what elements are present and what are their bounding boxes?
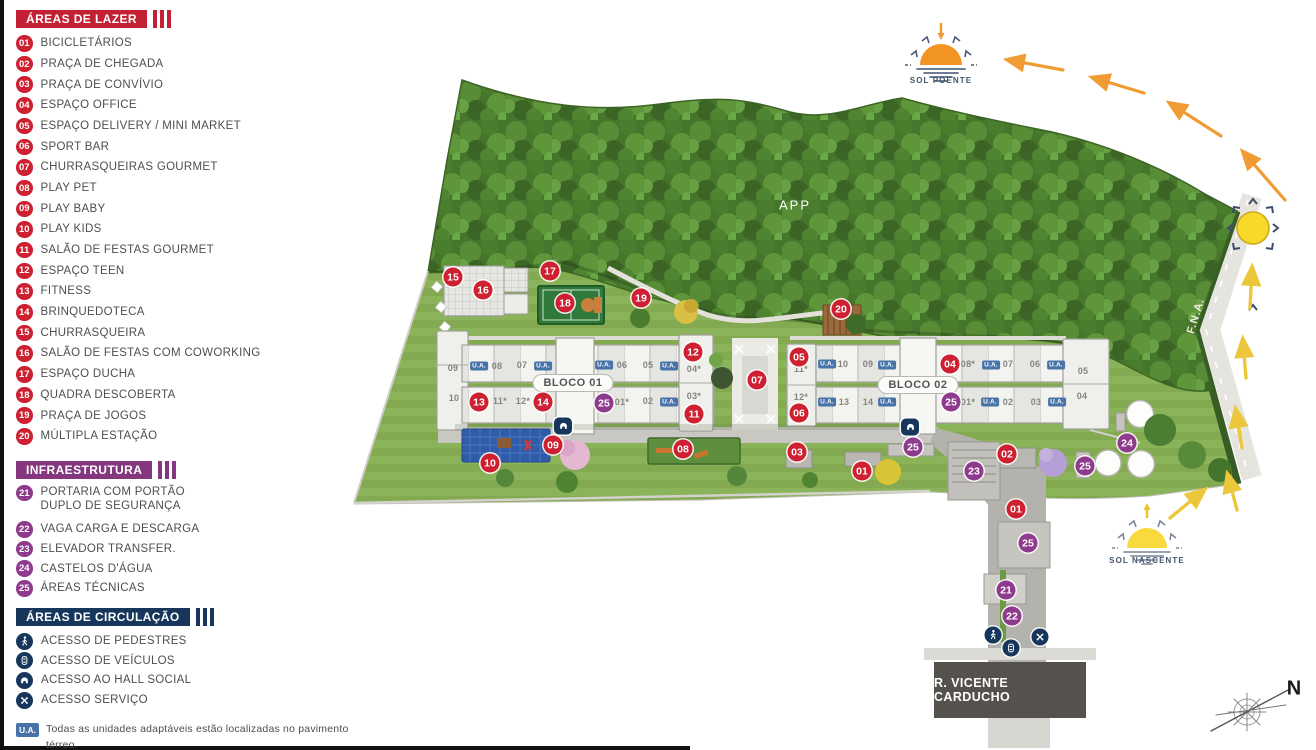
legend-item-label: SALÃO DE FESTAS GOURMET	[41, 243, 214, 257]
legend-item: ACESSO AO HALL SOCIAL	[16, 671, 376, 691]
legend-item-label: ESPAÇO TEEN	[41, 264, 125, 278]
footnote-text: Todas as unidades adaptáveis estão local…	[46, 722, 376, 750]
legend-item: 06 SPORT BAR	[16, 136, 376, 157]
map-badge: 16	[474, 281, 493, 300]
unit-label: 14	[863, 397, 874, 407]
legend-item-label: ACESSO SERVIÇO	[41, 693, 148, 707]
legend-lazer-items: 01 BICICLETÁRIOS 02 PRAÇA DE CHEGADA 03 …	[16, 33, 376, 447]
ua-tag: U.A.	[818, 398, 836, 407]
legend-section-lazer: ÁREAS DE LAZER 01 BICICLETÁRIOS 02 PRAÇA…	[16, 10, 376, 447]
legend-item-label: ESPAÇO DUCHA	[41, 367, 136, 381]
legend-section-infra: INFRAESTRUTURA 21 PORTARIA COM PORTÃO DU…	[16, 461, 376, 598]
access-icon	[554, 418, 572, 435]
unit-label: 10	[838, 359, 849, 369]
legend-item: 09 PLAY BABY	[16, 199, 376, 220]
legend-item: 07 CHURRASQUEIRAS GOURMET	[16, 157, 376, 178]
access-legend-icon	[16, 692, 33, 709]
legend-item-label: ELEVADOR TRANSFER.	[41, 542, 176, 556]
legend-item-number: 09	[16, 201, 33, 218]
bloco-label: BLOCO 01	[532, 374, 613, 392]
legend-item-label: BICICLETÁRIOS	[41, 36, 132, 50]
unit-label: 02	[643, 396, 654, 406]
legend-item-label: ÁREAS TÉCNICAS	[41, 581, 145, 595]
ua-tag: U.A.	[534, 362, 552, 371]
legend-item-number: 05	[16, 118, 33, 135]
legend-item-number: 07	[16, 159, 33, 176]
unit-label: 01*	[961, 397, 975, 407]
map-badge: 24	[1118, 434, 1137, 453]
map-badge: 10	[481, 454, 500, 473]
legend-item-number: 21	[16, 485, 33, 502]
sol-nascente-label: SOL NASCENTE	[1109, 556, 1185, 565]
header-stripes	[196, 608, 214, 626]
unit-label: 03	[1031, 397, 1042, 407]
street-sign: R. VICENTE CARDUCHO	[934, 662, 1086, 718]
compass-north-label: N	[1287, 678, 1301, 701]
footnote-line1: Todas as unidades adaptáveis estão local…	[46, 722, 376, 750]
map-badge: 09	[544, 436, 563, 455]
legend-item-label: PRAÇA DE CHEGADA	[41, 57, 164, 71]
map-badge: 13	[470, 393, 489, 412]
legend-item-label: ESPAÇO DELIVERY / MINI MARKET	[41, 119, 241, 133]
unit-label: 04*	[687, 364, 701, 374]
legend-header-lazer: ÁREAS DE LAZER	[16, 10, 376, 28]
map-badge: 01	[1007, 500, 1026, 519]
ua-tag: U.A.	[818, 360, 836, 369]
map-badge: 07	[748, 371, 767, 390]
legend-item-number: 15	[16, 325, 33, 342]
bloco-label: BLOCO 02	[877, 376, 958, 394]
legend-item-number: 11	[16, 242, 33, 259]
map-badge: 25	[904, 438, 923, 457]
map-badge: 08	[674, 440, 693, 459]
map-badge: 01	[853, 462, 872, 481]
ua-tag: U.A.	[981, 398, 999, 407]
legend-item: 05 ESPAÇO DELIVERY / MINI MARKET	[16, 116, 376, 137]
ua-tag: U.A.	[1047, 361, 1065, 370]
unit-label: 13	[839, 397, 850, 407]
legend-item-number: 19	[16, 407, 33, 424]
legend-item-label: PRAÇA DE JOGOS	[41, 409, 147, 423]
footnote: U.A. Todas as unidades adaptáveis estão …	[16, 722, 376, 750]
legend-item-number: 04	[16, 97, 33, 114]
legend-item-number: 24	[16, 560, 33, 577]
legend-item: ACESSO DE VEÍCULOS	[16, 651, 376, 671]
legend-panel: ÁREAS DE LAZER 01 BICICLETÁRIOS 02 PRAÇA…	[16, 10, 376, 750]
legend-item: 12 ESPAÇO TEEN	[16, 261, 376, 282]
sun-poente-icon	[905, 23, 977, 81]
unit-label: 02	[1003, 397, 1014, 407]
legend-item-label: CHURRASQUEIRA	[41, 326, 146, 340]
ua-tag: U.A.	[660, 362, 678, 371]
app-area-label: APP	[779, 198, 811, 213]
legend-item: 23 ELEVADOR TRANSFER.	[16, 539, 376, 559]
sol-poente-label: SOL POENTE	[910, 76, 972, 85]
legend-item-label: SPORT BAR	[41, 140, 110, 154]
legend-item-label: ACESSO DE PEDESTRES	[41, 634, 187, 648]
access-legend-icon	[16, 652, 33, 669]
legend-header-infra: INFRAESTRUTURA	[16, 461, 376, 479]
map-badge: 03	[788, 443, 807, 462]
street-name: R. VICENTE CARDUCHO	[934, 676, 1086, 704]
legend-header-circulacao: ÁREAS DE CIRCULAÇÃO	[16, 608, 376, 626]
map-badge: 25	[595, 394, 614, 413]
legend-item-number: 23	[16, 541, 33, 558]
sun-nascente-icon	[1112, 503, 1182, 564]
legend-item: 02 PRAÇA DE CHEGADA	[16, 54, 376, 75]
legend-item-number: 18	[16, 387, 33, 404]
map-badge: 21	[997, 581, 1016, 600]
unit-label: 03*	[687, 391, 701, 401]
unit-label: 04	[1077, 391, 1088, 401]
map-badge: 05	[790, 348, 809, 367]
legend-item: 21 PORTARIA COM PORTÃO DUPLO DE SEGURANÇ…	[16, 484, 376, 520]
unit-label: 08	[492, 361, 503, 371]
legend-item: 18 QUADRA DESCOBERTA	[16, 385, 376, 406]
legend-item: 15 CHURRASQUEIRA	[16, 323, 376, 344]
ua-tag: U.A.	[470, 362, 488, 371]
map-badge: 15	[444, 268, 463, 287]
legend-infra-items: 21 PORTARIA COM PORTÃO DUPLO DE SEGURANÇ…	[16, 484, 376, 598]
legend-item: 13 FITNESS	[16, 281, 376, 302]
legend-item: 24 CASTELOS D'ÁGUA	[16, 559, 376, 579]
left-border	[0, 0, 4, 750]
masterplan-page: APP F.N.A. SOL POENTE SOL NASCENTE R. VI…	[0, 0, 1316, 750]
legend-item-label: PRAÇA DE CONVÍVIO	[41, 78, 164, 92]
unit-label: 11*	[493, 396, 507, 406]
unit-label: 06	[617, 360, 628, 370]
map-badge: 25	[942, 393, 961, 412]
ua-tag: U.A.	[595, 361, 613, 370]
access-icon	[1032, 629, 1049, 646]
ua-tag: U.A.	[982, 361, 1000, 370]
access-icon	[901, 419, 919, 436]
ua-footnote-badge: U.A.	[16, 723, 39, 737]
compass-rose	[1211, 689, 1290, 731]
legend-item-number: 08	[16, 180, 33, 197]
ua-tag: U.A.	[878, 398, 896, 407]
unit-label: 06	[1030, 359, 1041, 369]
access-legend-icon	[16, 633, 33, 650]
access-legend-icon	[16, 672, 33, 689]
legend-item: 14 BRINQUEDOTECA	[16, 302, 376, 323]
legend-item-label: PLAY PET	[41, 181, 97, 195]
unit-label: 08*	[961, 359, 975, 369]
legend-item: 22 VAGA CARGA E DESCARGA	[16, 520, 376, 540]
unit-label: 05	[643, 360, 654, 370]
legend-item: 01 BICICLETÁRIOS	[16, 33, 376, 54]
map-badge: 25	[1019, 534, 1038, 553]
ua-tag: U.A.	[660, 398, 678, 407]
map-badge: 19	[632, 289, 651, 308]
legend-item-label: BRINQUEDOTECA	[41, 305, 145, 319]
unit-label: 05	[1078, 366, 1089, 376]
map-badge: 14	[534, 393, 553, 412]
legend-item: 08 PLAY PET	[16, 178, 376, 199]
legend-item-number: 25	[16, 580, 33, 597]
map-badge: 22	[1003, 607, 1022, 626]
legend-section-circulacao: ÁREAS DE CIRCULAÇÃO ACESSO DE PEDESTRES …	[16, 608, 376, 710]
map-badge: 17	[541, 262, 560, 281]
legend-item-number: 06	[16, 139, 33, 156]
legend-circulacao-items: ACESSO DE PEDESTRES ACESSO DE VEÍCULOS A…	[16, 631, 376, 710]
map-badge: 23	[965, 462, 984, 481]
map-badge: 04	[941, 355, 960, 374]
legend-header-infra-title: INFRAESTRUTURA	[16, 461, 152, 479]
legend-item-number: 17	[16, 366, 33, 383]
unit-label: 10	[449, 393, 460, 403]
legend-item: 10 PLAY KIDS	[16, 219, 376, 240]
legend-item: 16 SALÃO DE FESTAS COM COWORKING	[16, 343, 376, 364]
header-stripes	[158, 461, 176, 479]
ua-tag: U.A.	[1048, 398, 1066, 407]
legend-item-label: CHURRASQUEIRAS GOURMET	[41, 160, 218, 174]
legend-item: 04 ESPAÇO OFFICE	[16, 95, 376, 116]
legend-item-label: PLAY BABY	[41, 202, 106, 216]
legend-item-number: 14	[16, 304, 33, 321]
unit-label: 07	[517, 360, 528, 370]
legend-item: 03 PRAÇA DE CONVÍVIO	[16, 74, 376, 95]
legend-item-number: 20	[16, 428, 33, 445]
legend-item: 25 ÁREAS TÉCNICAS	[16, 579, 376, 599]
unit-label: 12*	[516, 396, 530, 406]
legend-item: 19 PRAÇA DE JOGOS	[16, 405, 376, 426]
map-badge: 12	[684, 343, 703, 362]
unit-label: 01*	[615, 397, 629, 407]
unit-label: 09	[448, 363, 459, 373]
map-badge: 02	[998, 445, 1017, 464]
unit-label: 12*	[794, 392, 808, 402]
access-icon	[1003, 640, 1020, 657]
legend-item-label: ACESSO AO HALL SOCIAL	[41, 673, 191, 687]
legend-item-label: MÚLTIPLA ESTAÇÃO	[41, 429, 158, 443]
legend-item-label: ACESSO DE VEÍCULOS	[41, 654, 175, 668]
map-badge: 18	[556, 294, 575, 313]
legend-item-label: PLAY KIDS	[41, 222, 102, 236]
ua-tag: U.A.	[878, 361, 896, 370]
map-badge: 25	[1076, 457, 1095, 476]
legend-item: 17 ESPAÇO DUCHA	[16, 364, 376, 385]
legend-item-number: 03	[16, 76, 33, 93]
access-icon	[985, 627, 1002, 644]
unit-label: 07	[1003, 359, 1014, 369]
header-stripes	[153, 10, 171, 28]
legend-item-number: 13	[16, 283, 33, 300]
legend-item: ACESSO SERVIÇO	[16, 691, 376, 711]
legend-item-label: SALÃO DE FESTAS COM COWORKING	[41, 346, 261, 360]
legend-header-lazer-title: ÁREAS DE LAZER	[16, 10, 147, 28]
legend-item-number: 10	[16, 221, 33, 238]
legend-item-number: 12	[16, 263, 33, 280]
unit-label: 09	[863, 359, 874, 369]
legend-item-label: VAGA CARGA E DESCARGA	[41, 522, 200, 536]
legend-item-label: QUADRA DESCOBERTA	[41, 388, 176, 402]
legend-header-circulacao-title: ÁREAS DE CIRCULAÇÃO	[16, 608, 190, 626]
legend-item-number: 16	[16, 345, 33, 362]
legend-item-label: ESPAÇO OFFICE	[41, 98, 137, 112]
legend-item-label: PORTARIA COM PORTÃO DUPLO DE SEGURANÇA	[41, 485, 185, 514]
map-badge: 11	[685, 405, 704, 424]
legend-item-label: CASTELOS D'ÁGUA	[41, 562, 153, 576]
legend-item-number: 02	[16, 56, 33, 73]
legend-item-number: 22	[16, 521, 33, 538]
legend-item: 20 MÚLTIPLA ESTAÇÃO	[16, 426, 376, 447]
legend-item: ACESSO DE PEDESTRES	[16, 631, 376, 651]
map-badge: 20	[832, 300, 851, 319]
map-badge: 06	[790, 404, 809, 423]
legend-item-number: 01	[16, 35, 33, 52]
legend-item: 11 SALÃO DE FESTAS GOURMET	[16, 240, 376, 261]
legend-item-label: FITNESS	[41, 284, 92, 298]
